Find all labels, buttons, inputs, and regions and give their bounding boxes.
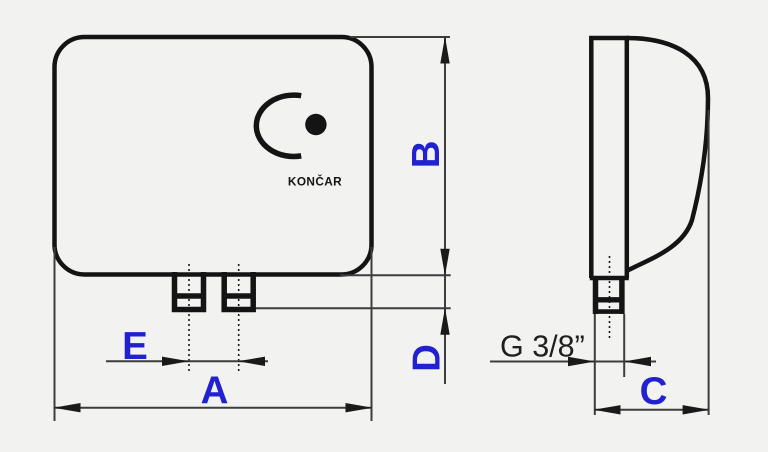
svg-text:A: A [201,370,229,413]
svg-text:C: C [640,370,668,413]
svg-text:E: E [122,325,148,368]
svg-text:D: D [406,344,449,372]
svg-text:G 3/8”: G 3/8” [500,330,585,364]
svg-text:B: B [405,140,448,168]
svg-text:KONČAR: KONČAR [288,175,342,189]
